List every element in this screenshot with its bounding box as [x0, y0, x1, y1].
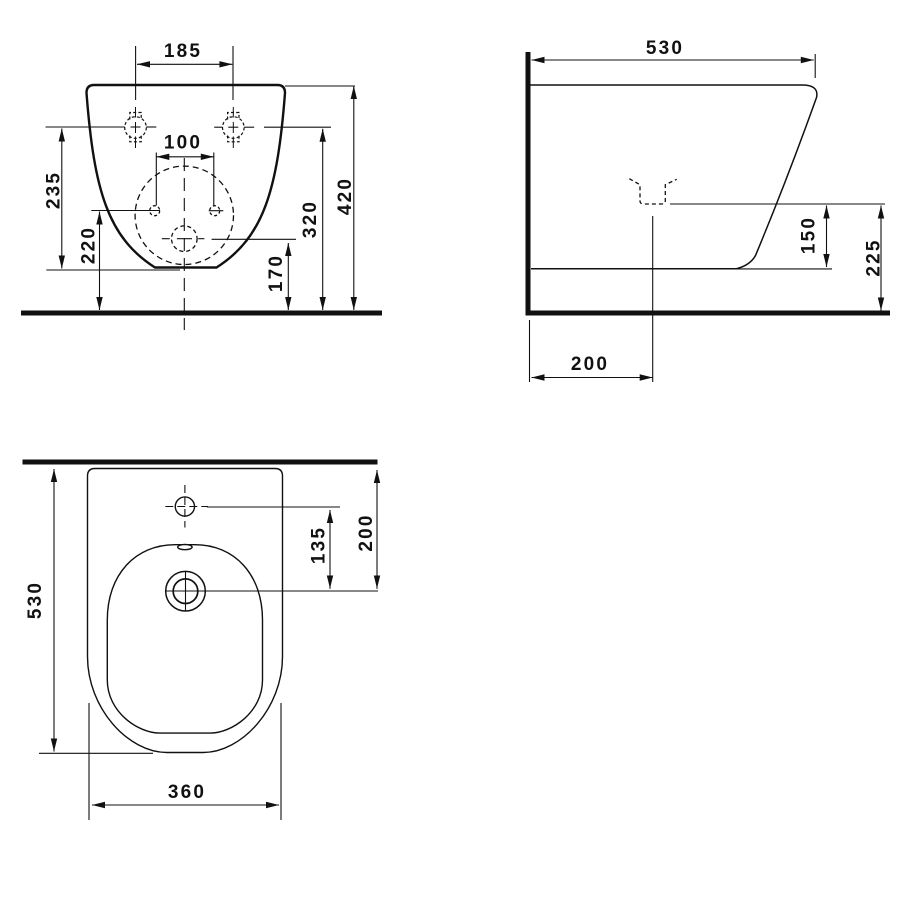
svg-text:360: 360: [168, 782, 206, 803]
svg-text:420: 420: [335, 177, 356, 215]
svg-text:185: 185: [164, 41, 202, 62]
svg-text:320: 320: [300, 200, 321, 238]
svg-text:135: 135: [309, 526, 330, 564]
svg-text:200: 200: [356, 513, 377, 551]
svg-text:530: 530: [646, 38, 684, 59]
svg-text:150: 150: [799, 216, 820, 254]
svg-text:530: 530: [25, 581, 46, 619]
svg-text:200: 200: [571, 354, 609, 375]
svg-text:220: 220: [79, 226, 100, 264]
svg-text:235: 235: [44, 171, 65, 209]
svg-text:100: 100: [164, 132, 202, 153]
svg-text:225: 225: [864, 238, 885, 276]
svg-text:170: 170: [266, 254, 287, 292]
